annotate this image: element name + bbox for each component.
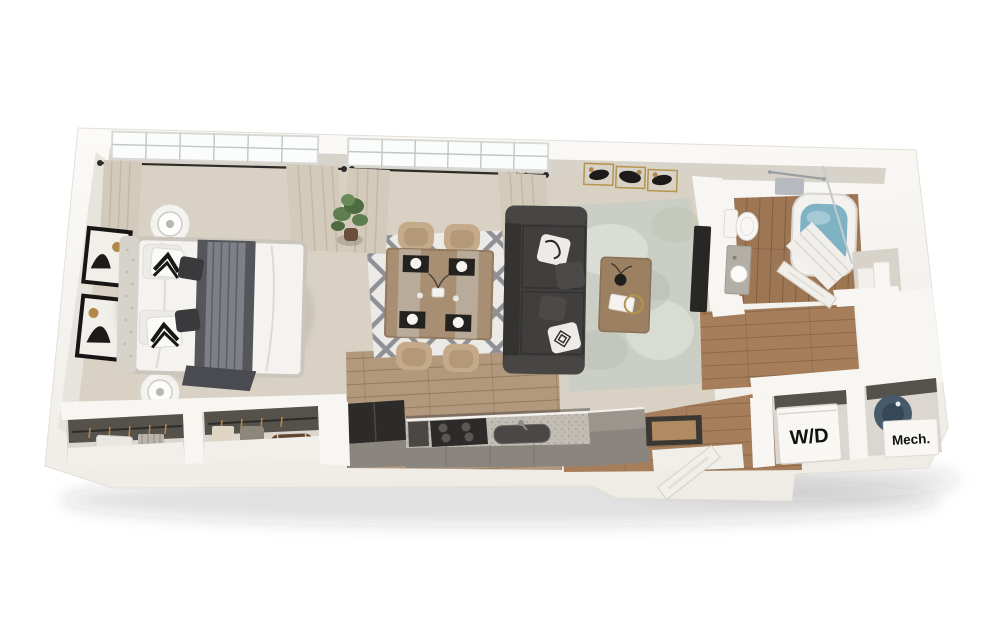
curtain-panel — [100, 160, 142, 236]
closet-right — [202, 406, 320, 463]
closet-divider — [183, 412, 204, 464]
wall-stub — [750, 396, 775, 468]
bed — [113, 236, 317, 393]
floorplan-stage: W/D Mech. — [0, 0, 998, 626]
dining-chair — [443, 343, 480, 372]
sofa-back — [503, 223, 521, 355]
bathroom-south-wall — [710, 296, 745, 317]
curtain-panel — [286, 164, 344, 252]
washer-dryer-label: W/D — [789, 425, 829, 450]
dining-chair — [396, 341, 433, 370]
cooktop — [430, 418, 488, 447]
vanity-sink — [725, 245, 751, 294]
doormat — [646, 415, 703, 446]
cabinet-front — [346, 440, 407, 468]
bedroom-window — [112, 131, 319, 163]
closet-left — [66, 414, 185, 468]
peninsula-counter — [588, 408, 650, 466]
dining-chair — [444, 223, 481, 252]
cabinet-front — [406, 444, 594, 468]
dining-window — [348, 139, 549, 171]
sofa-armrest — [503, 355, 585, 374]
utility-closets: W/D Mech. — [750, 362, 944, 468]
headboard — [116, 236, 140, 374]
laundry-closet: W/D — [772, 390, 850, 464]
floorplan-3d-render: W/D Mech. — [0, 0, 998, 626]
dishwasher — [408, 421, 429, 447]
sofa — [503, 205, 588, 374]
bedroom-closets — [60, 394, 350, 468]
dining-table — [385, 249, 493, 340]
washer-dryer-unit: W/D — [776, 404, 842, 464]
coffee-table — [599, 257, 652, 333]
dining-chair — [398, 221, 435, 250]
mechanical-closet: Mech. — [864, 378, 942, 457]
sofa-armrest — [505, 205, 587, 224]
mechanical-label: Mech. — [892, 431, 931, 448]
wall-stub — [318, 402, 350, 466]
